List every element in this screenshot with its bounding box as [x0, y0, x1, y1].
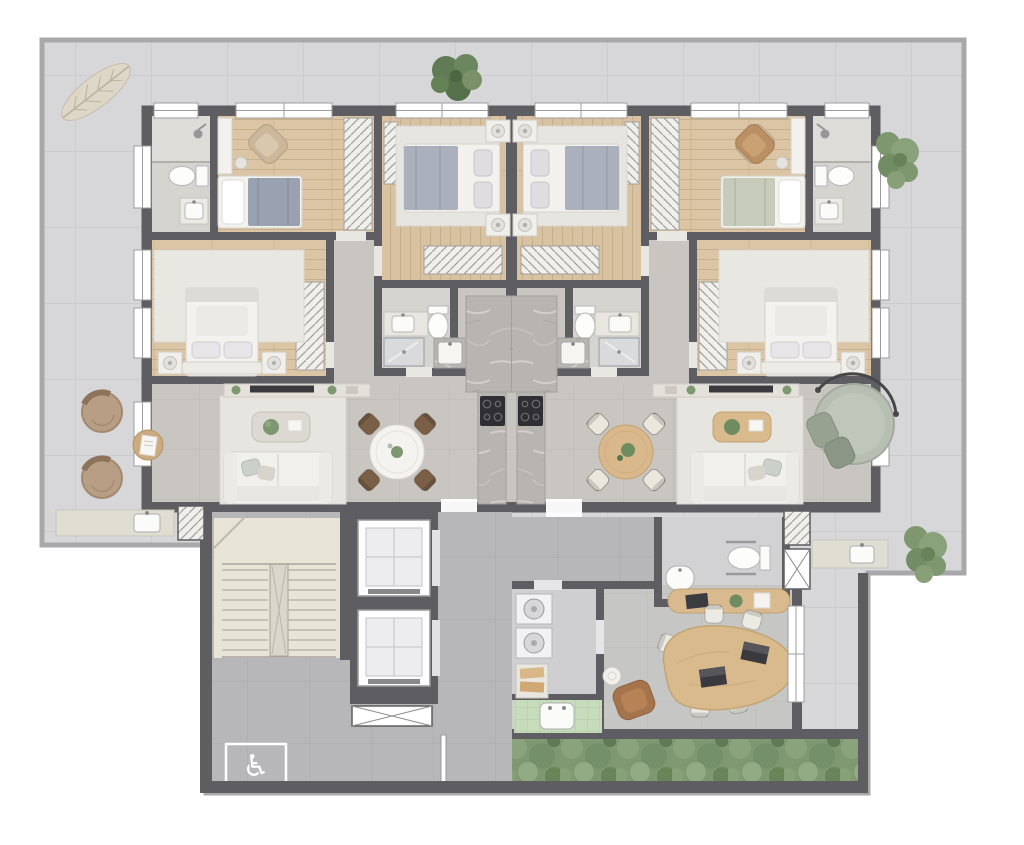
bath-vanity [384, 312, 428, 336]
sage-blanket [723, 178, 775, 226]
cooktop [480, 396, 505, 426]
tv [250, 386, 314, 393]
double-bed [404, 144, 500, 212]
coffee-table [252, 412, 310, 442]
wardrobe-small-bedroom [344, 118, 372, 230]
green-wc [514, 700, 602, 733]
staircase [214, 518, 340, 658]
stair-east-wall [340, 512, 350, 660]
elevator-car [358, 610, 430, 686]
ensuite-vanity [180, 198, 208, 224]
outdoor-side-table [133, 430, 163, 460]
elevator-car [358, 520, 430, 596]
outdoor-sink [134, 514, 160, 532]
open-door-leaf [441, 735, 446, 783]
apartment-unit-left [134, 103, 512, 519]
nightstand [158, 352, 182, 374]
nightstand [262, 352, 286, 374]
closet-center-bedroom [424, 246, 502, 274]
stool [235, 157, 247, 169]
bath-toilet [428, 306, 448, 339]
floor-plan-page: ♿ [0, 0, 1024, 845]
laptop [699, 666, 727, 687]
elevator-bank [350, 512, 440, 704]
office-window-wall [788, 606, 804, 702]
hedge-planter [512, 739, 858, 781]
wheelchair-icon: ♿ [243, 749, 270, 784]
single-bed [218, 176, 302, 228]
tv-console [224, 384, 370, 397]
lounge-chair [82, 392, 122, 432]
ensuite-toilet [169, 166, 208, 186]
floor-plan: ♿ [0, 0, 1024, 845]
sofa [224, 452, 332, 504]
ensuite-shower [152, 116, 210, 162]
credenza [668, 589, 790, 613]
master-bed [182, 288, 262, 376]
nightstand [486, 214, 510, 236]
outdoor-counter-right [812, 540, 888, 568]
side-table [603, 667, 621, 685]
bath-shower [384, 338, 424, 366]
outdoor-counter-left [56, 510, 174, 536]
blanket [248, 178, 300, 226]
vent-shaft-hatched [178, 506, 204, 540]
outdoor-sink [850, 546, 874, 563]
lobby-west-wall [200, 510, 212, 793]
shaft-hatched [784, 511, 810, 545]
washer [516, 594, 552, 624]
nightstand [486, 120, 510, 142]
vent-duct-x [352, 706, 432, 726]
blanket [404, 146, 458, 210]
towel-shelf [516, 664, 548, 698]
coffee-table-wood [713, 412, 771, 442]
lounge-chair [82, 458, 122, 498]
duct-x [784, 549, 810, 589]
dryer [516, 628, 552, 658]
